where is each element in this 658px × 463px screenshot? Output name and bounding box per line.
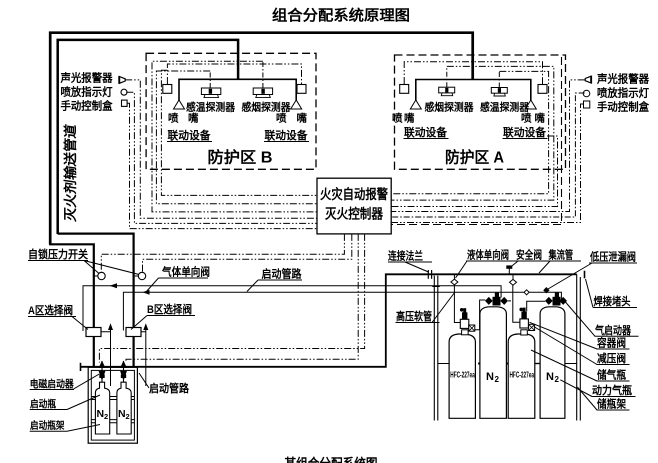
svg-text:启动管路: 启动管路 — [149, 381, 190, 395]
svg-text:高压软管: 高压软管 — [396, 309, 432, 323]
svg-text:自锁压力开关: 自锁压力开关 — [28, 247, 88, 261]
svg-text:2: 2 — [104, 412, 108, 421]
svg-text:声光报警器: 声光报警器 — [60, 71, 114, 85]
svg-text:连接法兰: 连接法兰 — [388, 249, 423, 263]
svg-text:集流管: 集流管 — [548, 248, 573, 262]
svg-text:HFC-227ea: HFC-227ea — [450, 371, 475, 380]
svg-text:嘴: 嘴 — [297, 112, 308, 125]
svg-text:联动设备: 联动设备 — [503, 125, 547, 139]
svg-text:电磁启动器: 电磁启动器 — [30, 378, 75, 391]
svg-text:手动控制盒: 手动控制盒 — [61, 99, 114, 113]
svg-text:低压泄漏阀: 低压泄漏阀 — [589, 250, 636, 264]
svg-text:组合分配系统原理图: 组合分配系统原理图 — [272, 7, 410, 25]
svg-text:手动控制盒: 手动控制盒 — [597, 100, 650, 114]
svg-text:嘴: 嘴 — [535, 112, 546, 125]
svg-text:联动设备: 联动设备 — [168, 128, 212, 142]
svg-text:N: N — [486, 371, 494, 383]
svg-text:2: 2 — [555, 375, 560, 384]
svg-text:喷放指示灯: 喷放指示灯 — [61, 85, 113, 99]
svg-text:联动设备: 联动设备 — [265, 128, 309, 142]
svg-text:B区选择阀: B区选择阀 — [147, 302, 192, 316]
svg-text:喷: 喷 — [392, 112, 403, 125]
svg-text:嘴: 嘴 — [404, 112, 415, 125]
svg-text:防护区 B: 防护区 B — [208, 148, 273, 167]
svg-text:气启动器: 气启动器 — [594, 323, 632, 337]
svg-text:气体单向阀: 气体单向阀 — [161, 265, 210, 279]
svg-text:减压阀: 减压阀 — [597, 351, 626, 365]
svg-text:某组合分配系统图: 某组合分配系统图 — [285, 456, 378, 463]
svg-text:喷: 喷 — [168, 112, 179, 125]
svg-text:感烟探测器: 感烟探测器 — [242, 101, 291, 114]
svg-text:火灾自动报警: 火灾自动报警 — [320, 186, 388, 202]
svg-text:启动瓶架: 启动瓶架 — [30, 419, 65, 432]
svg-text:容器阀: 容器阀 — [596, 336, 626, 350]
svg-text:防护区 A: 防护区 A — [445, 148, 504, 167]
svg-text:灭火控制器: 灭火控制器 — [324, 205, 383, 221]
svg-text:储瓶架: 储瓶架 — [597, 397, 626, 411]
svg-text:感温探测器: 感温探测器 — [480, 101, 529, 114]
svg-text:灭火剂输送管道: 灭火剂输送管道 — [62, 123, 78, 224]
svg-text:启动管路: 启动管路 — [262, 267, 303, 281]
svg-text:安全阀: 安全阀 — [516, 248, 542, 262]
svg-text:N: N — [546, 371, 554, 383]
svg-text:感烟探测器: 感烟探测器 — [425, 101, 474, 114]
svg-text:2: 2 — [495, 375, 500, 384]
svg-text:储气瓶: 储气瓶 — [597, 368, 626, 382]
svg-text:N: N — [97, 408, 105, 420]
svg-text:N: N — [118, 408, 126, 420]
svg-text:喷放指示灯: 喷放指示灯 — [597, 86, 649, 100]
svg-text:液体单向阀: 液体单向阀 — [467, 248, 509, 262]
svg-text:A区选择阀: A区选择阀 — [28, 303, 73, 317]
svg-text:声光报警器: 声光报警器 — [596, 72, 650, 86]
svg-text:HFC-227ea: HFC-227ea — [510, 371, 535, 380]
svg-text:联动设备: 联动设备 — [404, 125, 448, 139]
svg-text:启动瓶: 启动瓶 — [30, 398, 56, 411]
svg-text:焊接堵头: 焊接堵头 — [594, 294, 631, 308]
svg-text:动力气瓶: 动力气瓶 — [592, 383, 632, 397]
svg-text:感温探测器: 感温探测器 — [186, 101, 235, 114]
svg-text:2: 2 — [126, 412, 130, 421]
